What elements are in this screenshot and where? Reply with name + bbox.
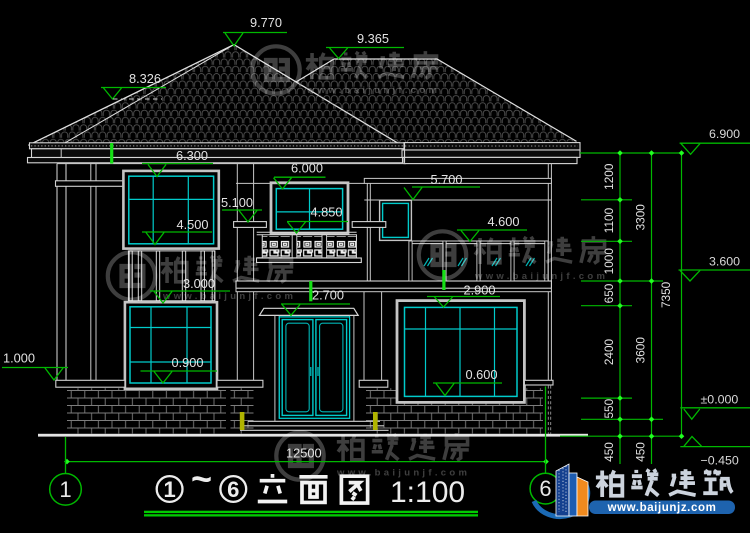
svg-text:1: 1 [163, 477, 175, 502]
svg-text:6.900: 6.900 [709, 127, 740, 141]
svg-text:3.600: 3.600 [709, 255, 740, 269]
svg-text:450: 450 [602, 442, 616, 462]
svg-text:4.600: 4.600 [488, 214, 520, 229]
svg-text:0.600: 0.600 [466, 367, 498, 382]
svg-text:6.000: 6.000 [291, 161, 323, 176]
svg-text:3300: 3300 [634, 204, 648, 231]
svg-text:6: 6 [227, 477, 239, 502]
svg-text:3600: 3600 [634, 337, 648, 364]
svg-text:8.326: 8.326 [129, 71, 161, 86]
svg-text:1000: 1000 [602, 248, 616, 275]
svg-text:6: 6 [539, 476, 551, 501]
svg-text:5.700: 5.700 [431, 172, 463, 187]
svg-text:1: 1 [59, 477, 71, 502]
svg-text:2400: 2400 [602, 338, 616, 365]
svg-text:~: ~ [191, 458, 212, 499]
svg-text:3.000: 3.000 [183, 276, 215, 291]
svg-text:4.500: 4.500 [177, 217, 209, 232]
svg-text:12500: 12500 [286, 446, 322, 461]
svg-text:9.770: 9.770 [250, 15, 282, 30]
svg-text:5.100: 5.100 [221, 195, 253, 210]
svg-text:−0.450: −0.450 [701, 454, 739, 468]
svg-text:7350: 7350 [659, 281, 673, 308]
svg-text:2.900: 2.900 [464, 283, 496, 298]
svg-text:www.baijunjf.com: www.baijunjf.com [474, 271, 608, 282]
svg-text:450: 450 [634, 442, 648, 462]
svg-text:www.baijunjf.com: www.baijunjf.com [306, 85, 440, 96]
svg-text:9.365: 9.365 [357, 31, 389, 46]
svg-text:1.000: 1.000 [3, 351, 35, 366]
svg-text:4.850: 4.850 [311, 205, 343, 220]
svg-text:0.900: 0.900 [172, 355, 204, 370]
svg-text:2.700: 2.700 [312, 288, 344, 303]
svg-text:650: 650 [602, 283, 616, 303]
svg-text:www.baijunjf.com: www.baijunjf.com [162, 291, 296, 302]
svg-text:±0.000: ±0.000 [701, 393, 739, 407]
svg-text:1:100: 1:100 [390, 476, 465, 509]
svg-text:550: 550 [602, 398, 616, 418]
svg-text:1200: 1200 [602, 163, 616, 190]
svg-text:1100: 1100 [602, 207, 616, 233]
svg-text:6.300: 6.300 [176, 148, 208, 163]
svg-text:www.baijunjz.com: www.baijunjz.com [607, 502, 717, 514]
